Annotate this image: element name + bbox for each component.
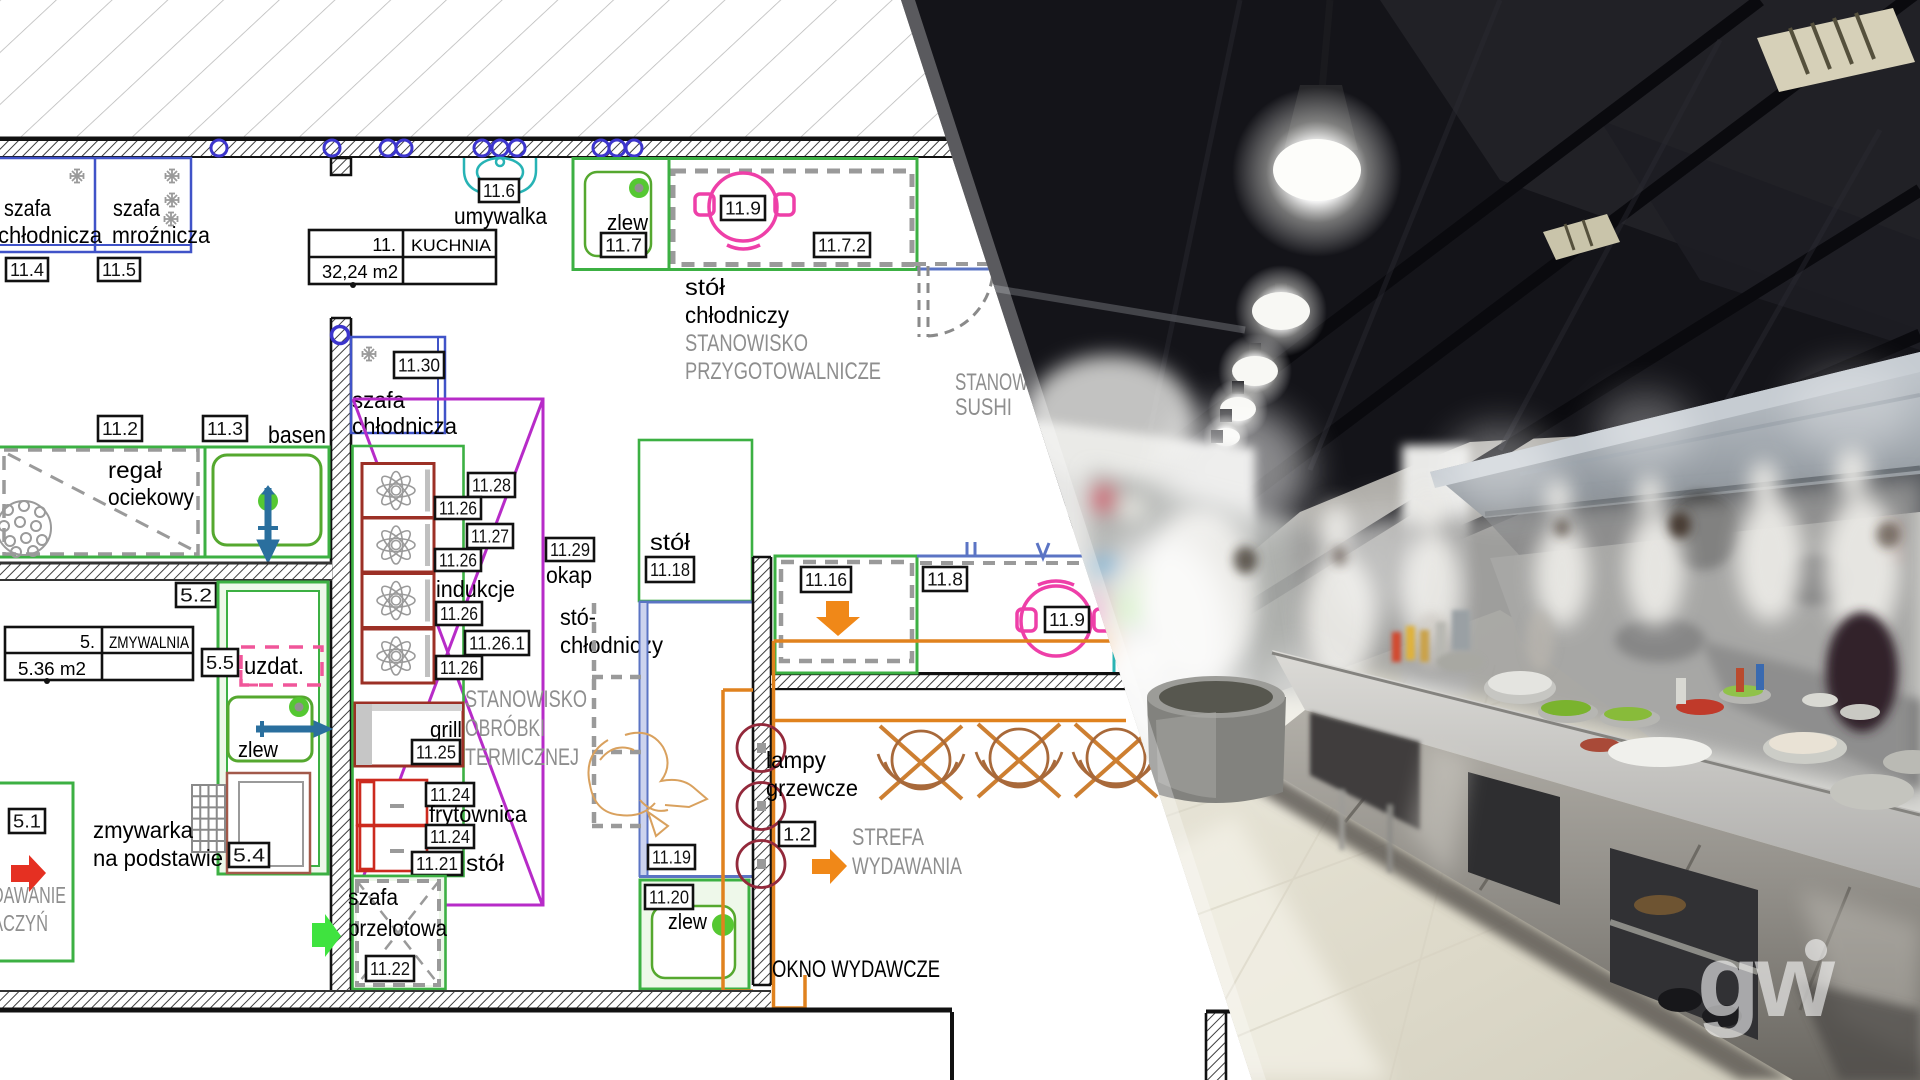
svg-text:1.2: 1.2: [783, 824, 811, 845]
svg-text:11.28: 11.28: [472, 475, 511, 496]
svg-text:uzdat.: uzdat.: [244, 653, 304, 680]
svg-text:11.25: 11.25: [416, 742, 456, 763]
svg-text:stół: stół: [650, 529, 690, 555]
svg-text:zlew: zlew: [668, 909, 707, 934]
svg-text:11.9: 11.9: [725, 198, 761, 219]
svg-text:11.30: 11.30: [398, 355, 440, 376]
svg-text:OBRÓBKI: OBRÓBKI: [465, 715, 545, 742]
svg-text:11.26: 11.26: [439, 550, 477, 571]
svg-text:11.2: 11.2: [102, 418, 138, 439]
svg-text:11.16: 11.16: [805, 569, 847, 590]
svg-text:11.21: 11.21: [416, 853, 458, 874]
svg-text:regał: regał: [108, 457, 162, 483]
svg-text:SUSHI: SUSHI: [955, 394, 1012, 421]
svg-text:umywalka: umywalka: [454, 203, 547, 229]
svg-text:szafa: szafa: [348, 884, 398, 910]
svg-text:zlew: zlew: [607, 210, 648, 235]
svg-text:ociekowy: ociekowy: [108, 484, 194, 510]
svg-text:11.9: 11.9: [1049, 609, 1085, 630]
svg-text:ZMYWALNIA: ZMYWALNIA: [109, 633, 190, 652]
svg-text:11.24: 11.24: [430, 826, 470, 847]
svg-text:zmywarka: zmywarka: [93, 817, 193, 843]
svg-text:5.2: 5.2: [180, 585, 212, 606]
svg-text:grill: grill: [430, 717, 462, 742]
svg-text:DAWANIE: DAWANIE: [0, 882, 66, 908]
svg-text:ACZYŃ: ACZYŃ: [0, 910, 48, 936]
svg-text:szafa: szafa: [4, 195, 51, 221]
svg-text:STANOWISKO: STANOWISKO: [685, 330, 808, 357]
svg-text:5.1: 5.1: [13, 811, 41, 832]
svg-text:stół: stół: [466, 850, 504, 876]
svg-text:chłodnicza: chłodnicza: [0, 222, 102, 248]
svg-text:STANOWI: STANOWI: [955, 369, 1033, 396]
svg-text:frytownica: frytownica: [429, 801, 527, 827]
svg-text:indukcje: indukcje: [436, 576, 515, 602]
svg-text:11.19: 11.19: [652, 847, 691, 868]
svg-text:11.26.1: 11.26.1: [469, 633, 525, 654]
svg-text:5.4: 5.4: [233, 845, 265, 866]
svg-text:11.27: 11.27: [471, 526, 509, 547]
svg-text:mroźnicza: mroźnicza: [112, 222, 210, 248]
svg-text:5.5: 5.5: [206, 652, 234, 673]
svg-text:11.3: 11.3: [207, 418, 243, 439]
svg-text:okap: okap: [546, 562, 592, 588]
svg-text:11.: 11.: [372, 235, 396, 255]
svg-text:szafa: szafa: [113, 195, 160, 221]
svg-text:KUCHNIA: KUCHNIA: [411, 236, 492, 255]
svg-text:11.29: 11.29: [550, 539, 590, 560]
svg-text:11.22: 11.22: [370, 958, 410, 979]
svg-text:grzewcze: grzewcze: [766, 775, 858, 801]
svg-text:OKNO WYDAWCZE: OKNO WYDAWCZE: [772, 956, 940, 983]
svg-text:przelotowa: przelotowa: [348, 915, 447, 941]
svg-text:5.: 5.: [80, 632, 95, 652]
svg-text:11.26: 11.26: [439, 498, 477, 519]
svg-text:32,24 m2: 32,24 m2: [322, 262, 398, 282]
svg-text:stół: stół: [685, 274, 725, 300]
svg-text:zlew: zlew: [238, 737, 278, 762]
svg-text:11.7.2: 11.7.2: [818, 235, 866, 256]
svg-text:11.5: 11.5: [102, 259, 136, 280]
svg-text:11.8: 11.8: [927, 569, 963, 590]
svg-text:stó-: stó-: [560, 604, 596, 630]
svg-text:PRZYGOTOWALNICZE: PRZYGOTOWALNICZE: [685, 358, 881, 385]
svg-text:lampy: lampy: [766, 747, 826, 773]
svg-text:na podstawie: na podstawie: [93, 845, 223, 871]
svg-text:11.6: 11.6: [483, 180, 515, 201]
svg-text:11.26: 11.26: [440, 603, 478, 624]
svg-text:basen: basen: [268, 422, 326, 449]
svg-text:TERMICZNEJ: TERMICZNEJ: [465, 744, 579, 771]
svg-text:WYDAWANIA: WYDAWANIA: [852, 853, 962, 880]
svg-text:STREFA: STREFA: [852, 824, 924, 851]
svg-text:11.26: 11.26: [440, 657, 478, 678]
svg-text:11.18: 11.18: [650, 559, 690, 580]
svg-text:5.36 m2: 5.36 m2: [18, 659, 86, 679]
svg-text:chłodniczy: chłodniczy: [685, 302, 789, 328]
svg-text:11.4: 11.4: [10, 259, 44, 280]
svg-text:11.7: 11.7: [605, 235, 642, 256]
svg-text:11.20: 11.20: [649, 887, 689, 908]
svg-text:STANOWISKO: STANOWISKO: [465, 686, 587, 713]
